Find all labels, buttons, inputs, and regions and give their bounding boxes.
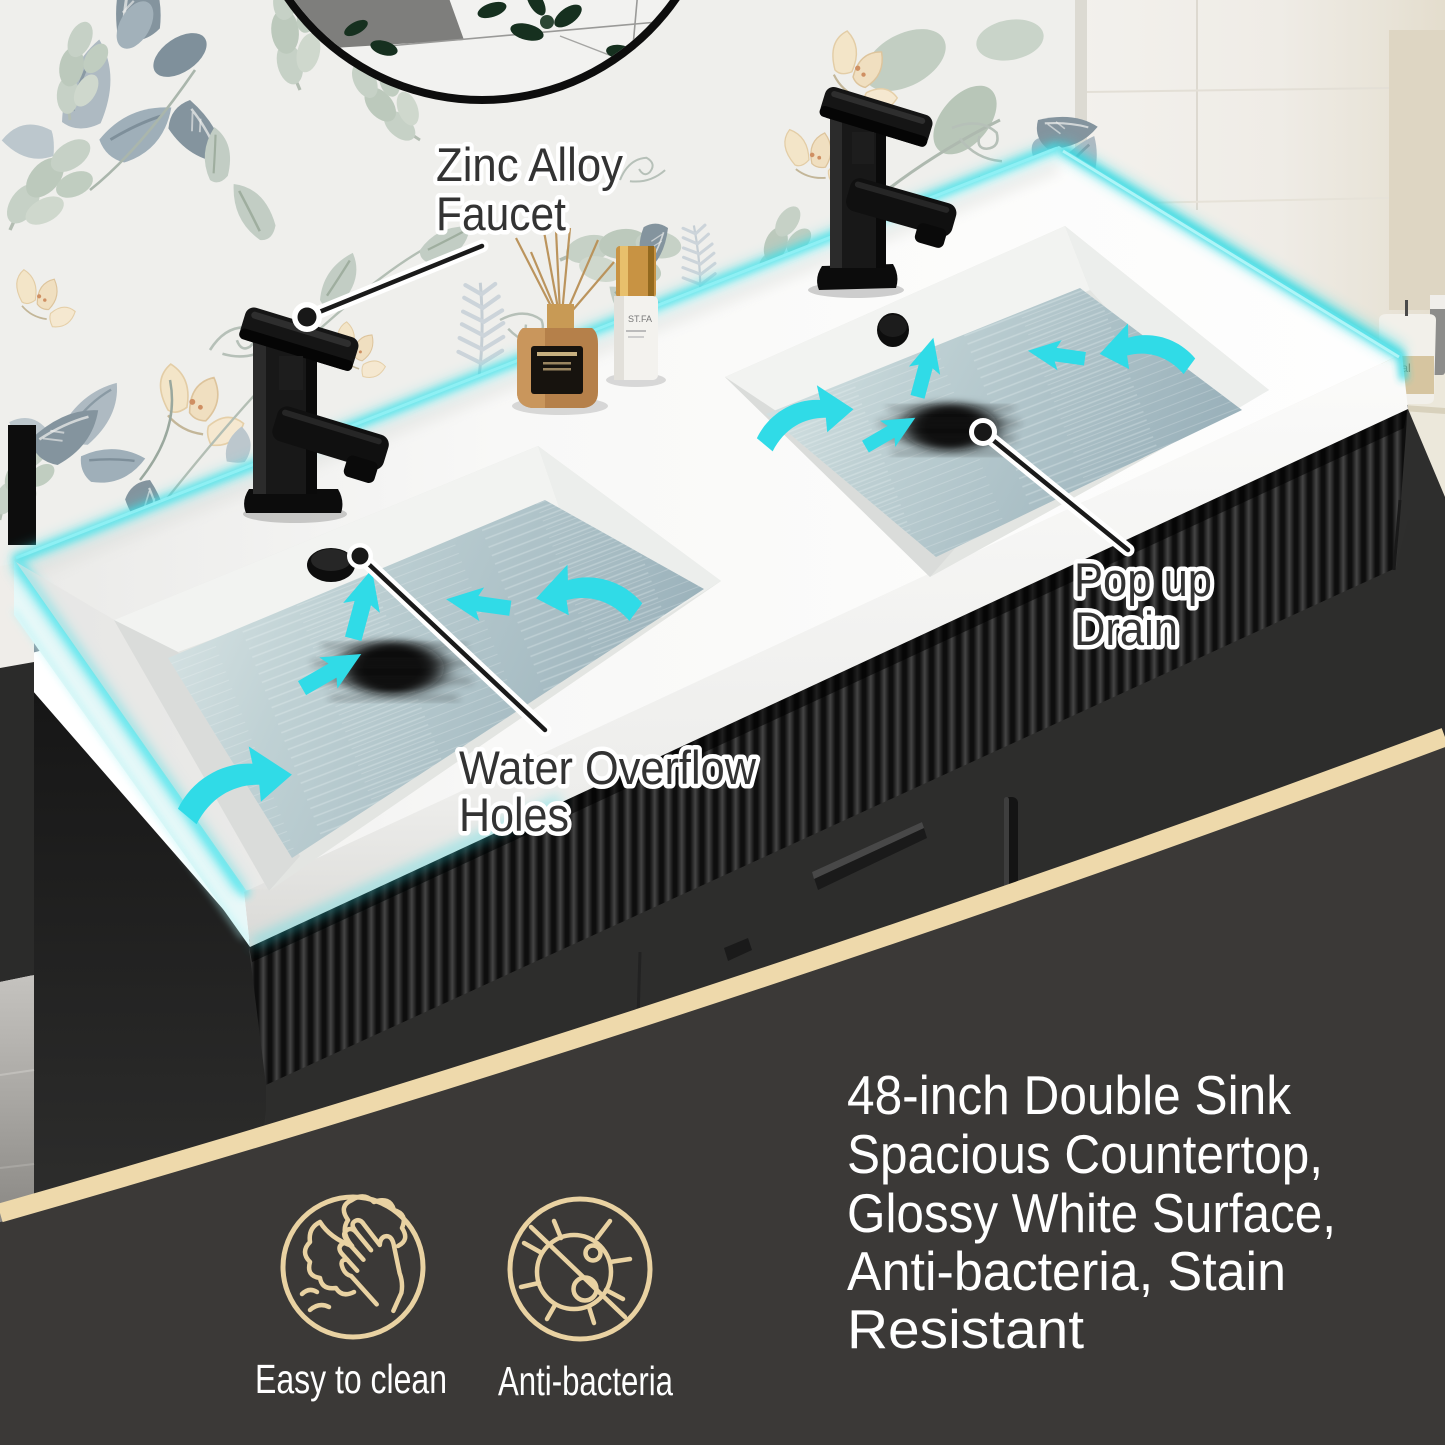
svg-text:48-inch Double Sink: 48-inch Double Sink — [847, 1064, 1291, 1126]
svg-text:Easy to clean: Easy to clean — [255, 1356, 447, 1402]
svg-text:Faucet: Faucet — [436, 187, 566, 240]
svg-text:Drain: Drain — [1074, 602, 1178, 655]
svg-text:ST.FA: ST.FA — [628, 314, 652, 324]
svg-text:Spacious Countertop,: Spacious Countertop, — [847, 1123, 1323, 1185]
svg-text:Water Overflow: Water Overflow — [459, 741, 757, 794]
svg-text:Glossy White Surface,: Glossy White Surface, — [847, 1182, 1336, 1244]
svg-text:Anti-bacteria: Anti-bacteria — [498, 1358, 673, 1404]
svg-text:Zinc Alloy: Zinc Alloy — [436, 138, 623, 191]
svg-text:Pop up: Pop up — [1074, 553, 1212, 606]
svg-text:Anti-bacteria, Stain: Anti-bacteria, Stain — [847, 1240, 1286, 1302]
svg-text:Holes: Holes — [459, 788, 569, 841]
svg-text:Resistant: Resistant — [847, 1298, 1084, 1360]
